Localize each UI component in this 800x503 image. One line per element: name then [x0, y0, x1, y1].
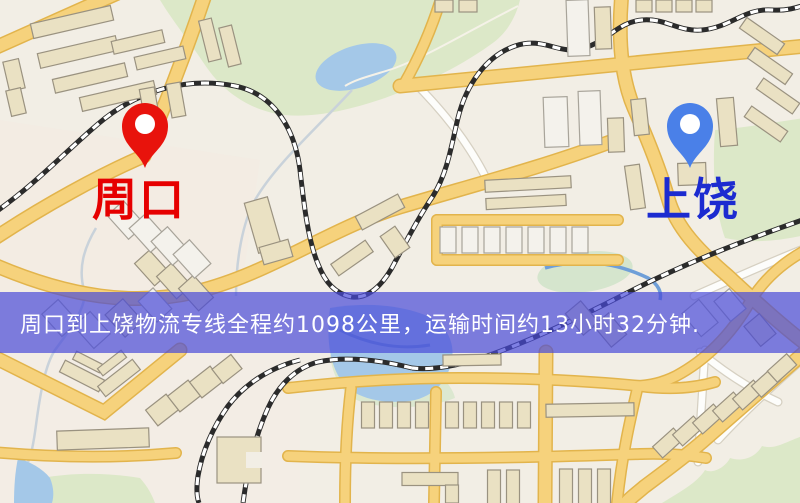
route-info-banner: 周口到上饶物流专线全程约1098公里，运输时间约13小时32分钟.	[0, 292, 800, 353]
destination-city-label: 上饶	[646, 177, 740, 222]
map-canvas[interactable]	[0, 0, 800, 503]
origin-city-label: 周口	[92, 177, 186, 222]
route-info-text: 周口到上饶物流专线全程约1098公里，运输时间约13小时32分钟.	[0, 307, 700, 339]
route-map-screenshot: 周口 上饶 周口到上饶物流专线全程约1098公里，运输时间约13小时32分钟.	[0, 0, 800, 503]
